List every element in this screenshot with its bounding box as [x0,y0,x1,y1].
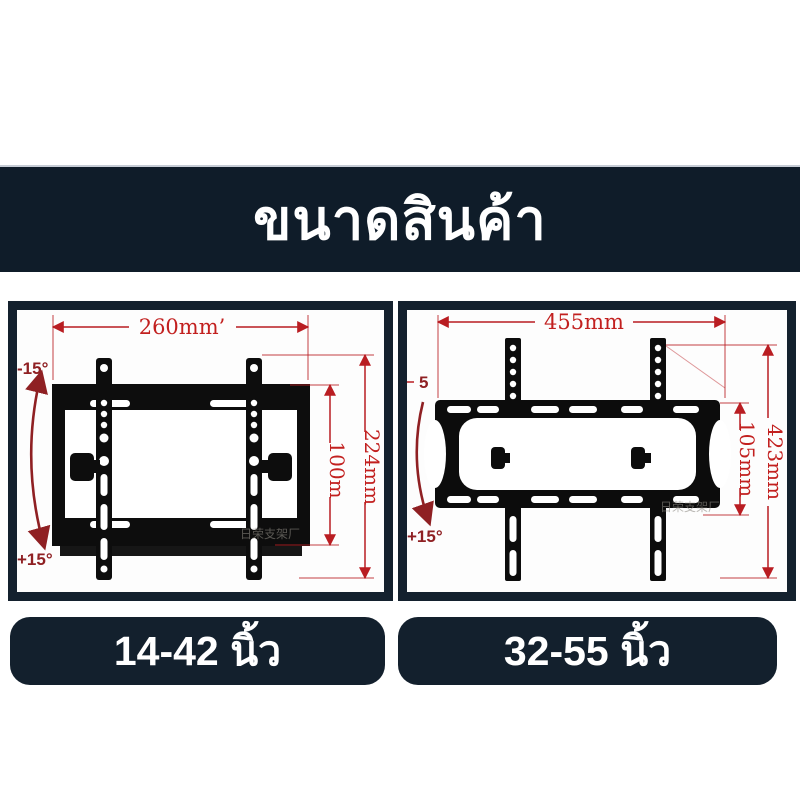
bracket-diagram-large: 455mm 105mm 423mm 5 +15° 日荣支架厂 [407,310,787,592]
outer-height-dimension-label: 224mm [360,429,384,505]
size-badge-large: 32-55 นิ้ว [398,617,777,685]
outer-height-dimension-label: 423mm [763,424,787,500]
tilt-arc [31,374,44,546]
diagram-panel-small: 260mm’ 100m 224mm -15° +15° 日荣支架厂 [8,301,393,601]
product-size-infographic: ขนาดสินค้า [0,0,800,800]
width-dimension-label: 260mm’ [139,315,226,339]
inner-height-dimension-label: 100m [325,441,349,498]
page-title: ขนาดสินค้า [253,175,547,264]
tv-bracket-small [52,358,310,580]
tilt-up-label: -15° [17,359,49,378]
size-badge-small: 14-42 นิ้ว [10,617,385,685]
factory-watermark: 日荣支架厂 [660,500,720,514]
tilt-down-label: +15° [407,527,443,546]
width-dimension-label: 455mm [544,310,624,334]
vesa-rail-right [246,358,262,580]
tilt-down-label: +15° [17,550,53,569]
diagram-panel-large: 455mm 105mm 423mm 5 +15° 日荣支架厂 [398,301,796,601]
inner-height-dimension-label: 105mm [735,421,759,497]
bracket-diagram-small: 260mm’ 100m 224mm -15° +15° 日荣支架厂 [17,310,384,592]
title-banner: ขนาดสินค้า [0,165,800,272]
tv-bracket-large [424,338,731,581]
size-badge-small-label: 14-42 นิ้ว [114,619,281,684]
size-badge-large-label: 32-55 นิ้ว [504,619,671,684]
tilt-up-label: 5 [419,373,428,392]
factory-watermark: 日荣支架厂 [240,527,300,541]
